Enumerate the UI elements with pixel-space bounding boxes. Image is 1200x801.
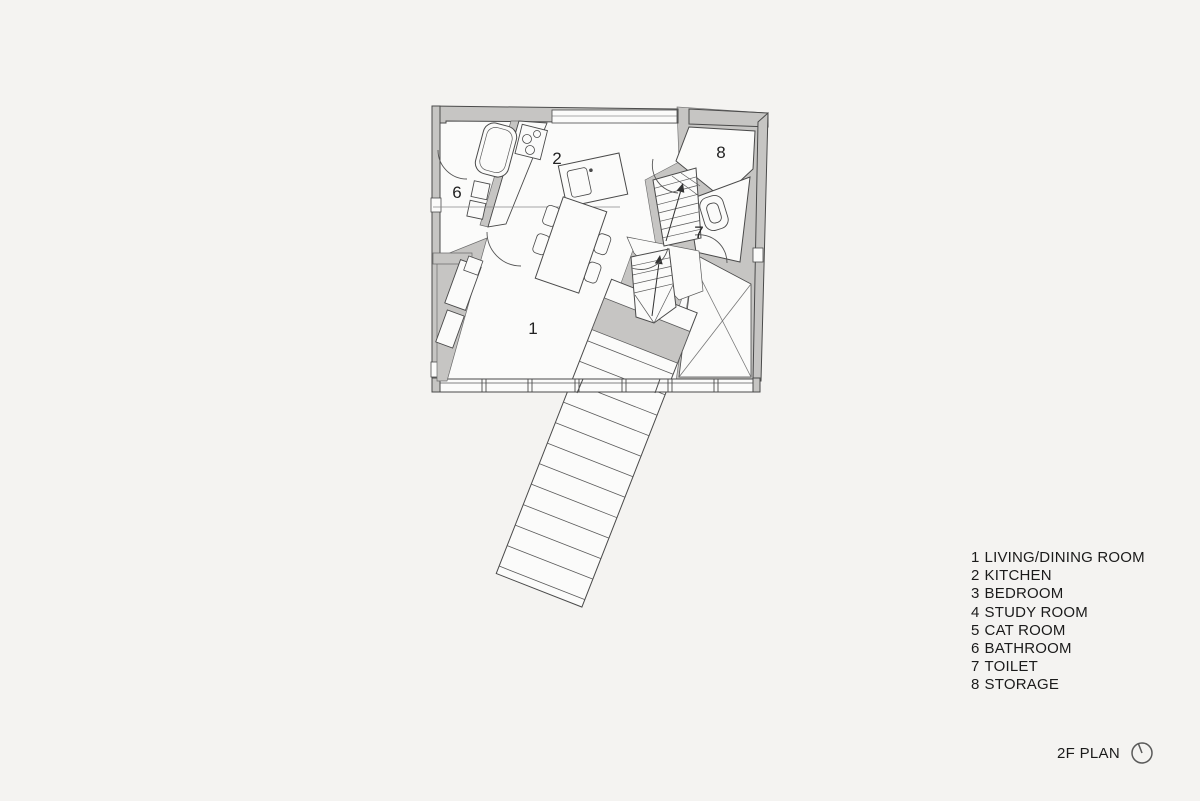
legend-number: 1 bbox=[971, 549, 980, 566]
legend-room-name: LIVING/DINING ROOM bbox=[985, 549, 1145, 566]
legend-room-name: TOILET bbox=[985, 658, 1038, 675]
wall-stub bbox=[753, 378, 760, 392]
window-right bbox=[753, 248, 763, 262]
window-top bbox=[552, 110, 677, 123]
legend-item: 8STORAGE bbox=[971, 676, 1145, 694]
legend-number: 6 bbox=[971, 640, 980, 657]
room-label-7: 7 bbox=[694, 223, 703, 242]
room-label-1: 1 bbox=[528, 319, 537, 338]
legend-room-name: CAT ROOM bbox=[985, 622, 1066, 639]
legend-item: 1LIVING/DINING ROOM bbox=[971, 549, 1145, 567]
legend-number: 7 bbox=[971, 658, 980, 675]
legend-number: 4 bbox=[971, 604, 980, 621]
plan-title: 2F PLAN bbox=[1057, 745, 1120, 762]
page: 1 2 6 7 8 1LIVING/DINING ROOM 2KITCHEN 3… bbox=[0, 0, 1200, 801]
legend-room-name: KITCHEN bbox=[985, 567, 1052, 584]
room-label-6: 6 bbox=[452, 183, 461, 202]
plan-title-row: 2F PLAN bbox=[1057, 740, 1155, 766]
wall-top-right bbox=[689, 109, 768, 127]
legend-item: 7TOILET bbox=[971, 658, 1145, 676]
legend-room-name: BATHROOM bbox=[985, 640, 1072, 657]
legend-room-name: STORAGE bbox=[985, 676, 1059, 693]
legend-item: 2KITCHEN bbox=[971, 567, 1145, 585]
legend-number: 8 bbox=[971, 676, 980, 693]
legend: 1LIVING/DINING ROOM 2KITCHEN 3BEDROOM 4S… bbox=[971, 549, 1145, 695]
legend-number: 2 bbox=[971, 567, 980, 584]
room-label-8: 8 bbox=[716, 143, 725, 162]
room-label-2: 2 bbox=[552, 149, 561, 168]
legend-item: 6BATHROOM bbox=[971, 640, 1145, 658]
window-band-bottom bbox=[437, 379, 757, 393]
legend-number: 3 bbox=[971, 585, 980, 602]
window-left-upper bbox=[431, 198, 441, 212]
north-arrow-icon bbox=[1129, 740, 1155, 766]
legend-room-name: BEDROOM bbox=[985, 585, 1064, 602]
legend-room-name: STUDY ROOM bbox=[985, 604, 1088, 621]
stair-flight-lower bbox=[631, 249, 676, 323]
legend-item: 5CAT ROOM bbox=[971, 622, 1145, 640]
legend-item: 4STUDY ROOM bbox=[971, 604, 1145, 622]
legend-item: 3BEDROOM bbox=[971, 585, 1145, 603]
legend-number: 5 bbox=[971, 622, 980, 639]
